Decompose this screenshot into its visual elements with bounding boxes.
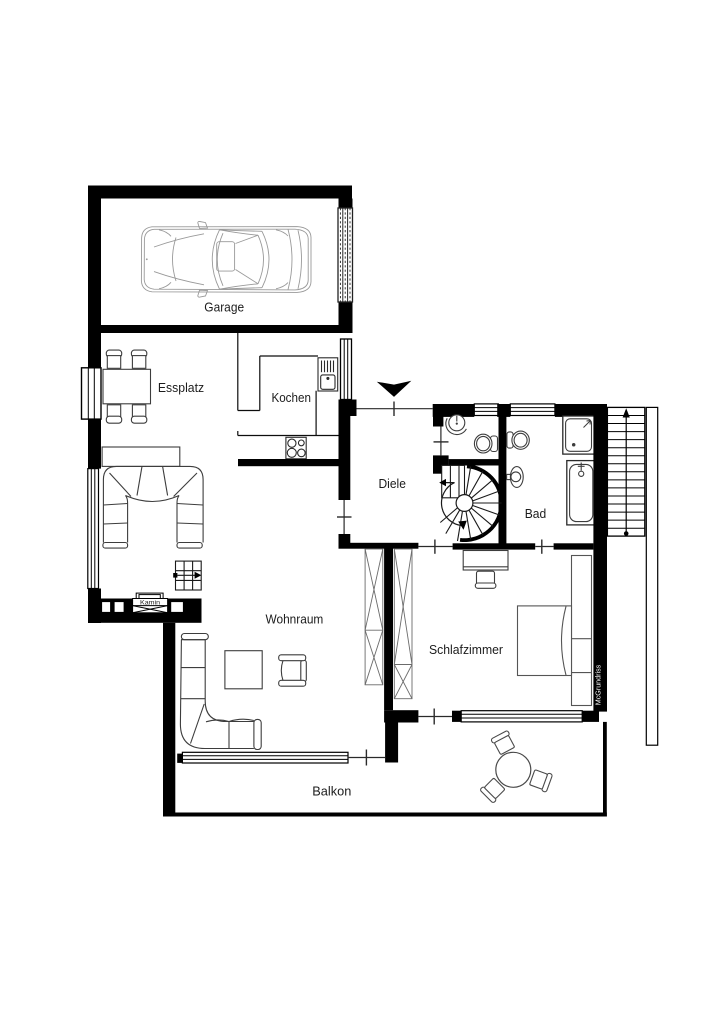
svg-text:Kamin: Kamin [140,601,160,607]
svg-text:Wohnraum: Wohnraum [266,612,324,627]
svg-text:Garage: Garage [204,300,244,315]
svg-text:Diele: Diele [379,476,406,491]
svg-text:Bad: Bad [525,506,547,521]
svg-text:McGrundriss: McGrundriss [594,665,603,706]
svg-text:Kochen: Kochen [271,390,311,405]
svg-text:Essplatz: Essplatz [158,380,204,395]
svg-text:Schlafzimmer: Schlafzimmer [429,642,504,657]
svg-text:Balkon: Balkon [312,783,351,798]
